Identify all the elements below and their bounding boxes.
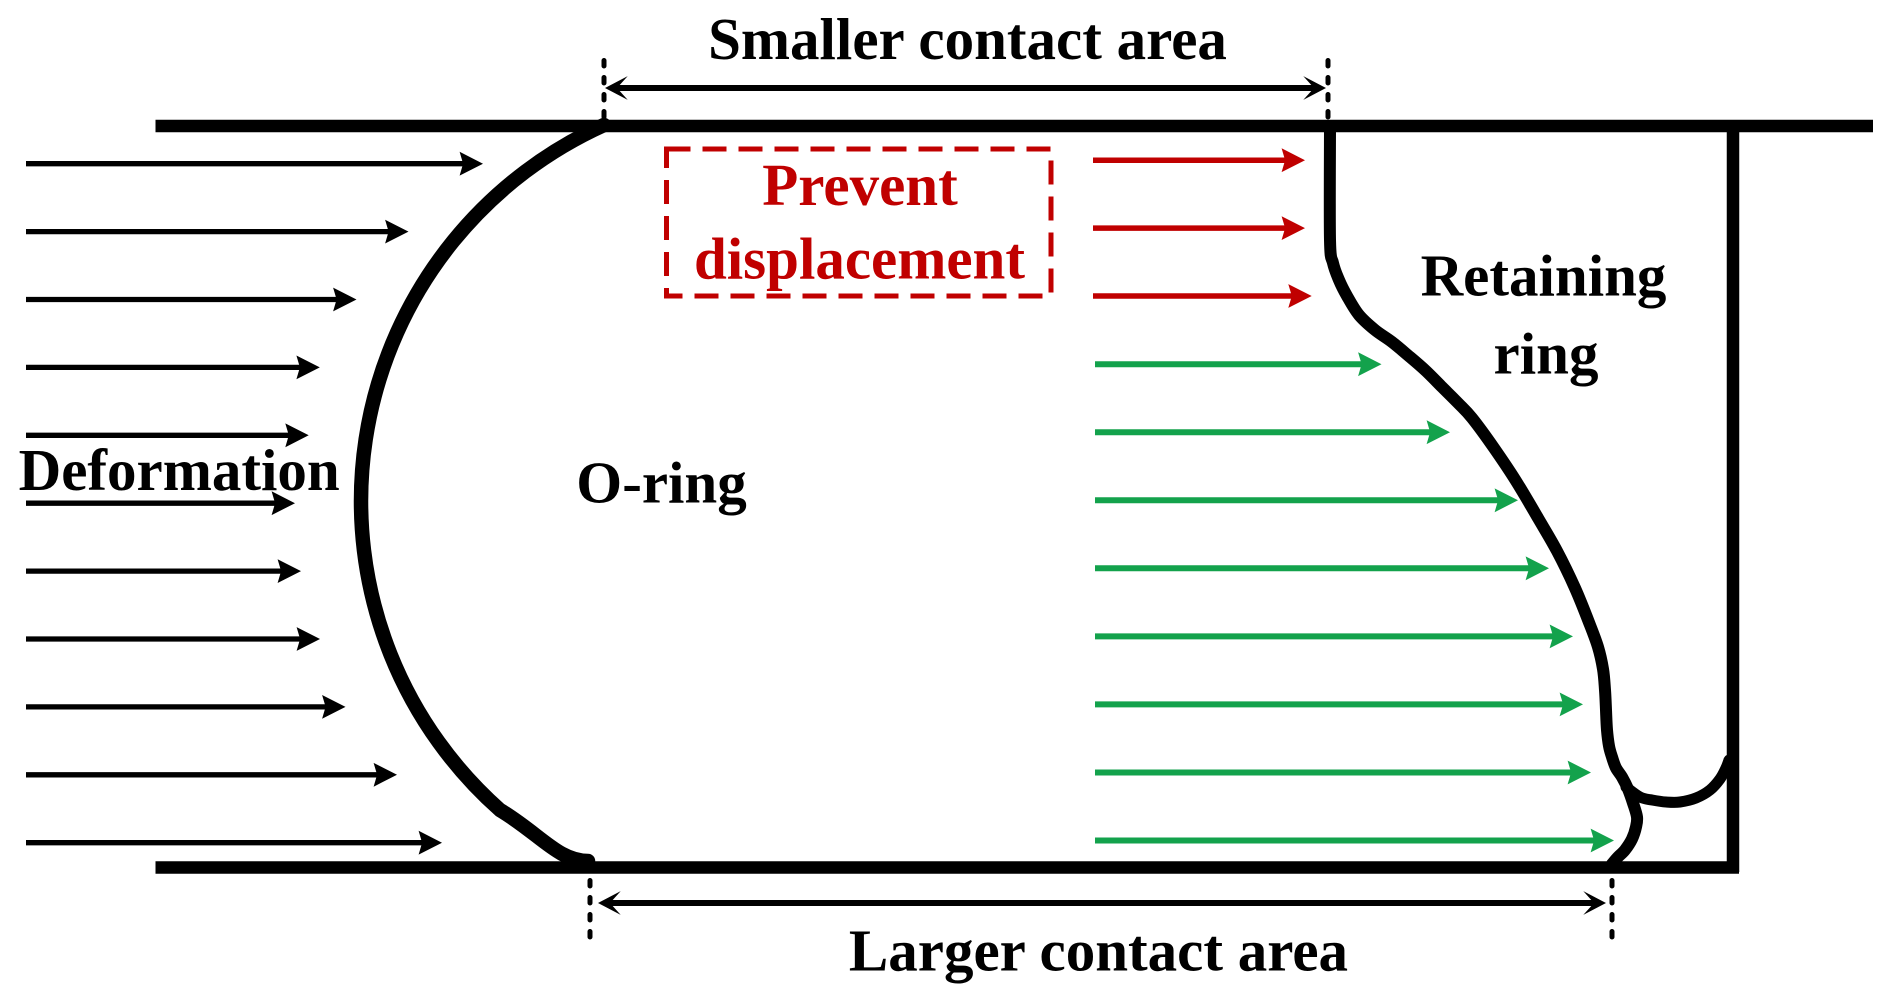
svg-text:Smaller contact area: Smaller contact area xyxy=(708,6,1227,72)
svg-text:Retaining: Retaining xyxy=(1421,242,1667,308)
svg-text:Deformation: Deformation xyxy=(19,437,340,503)
svg-text:Larger contact area: Larger contact area xyxy=(849,918,1348,984)
svg-text:ring: ring xyxy=(1494,320,1599,386)
svg-text:O-ring: O-ring xyxy=(576,450,746,516)
svg-text:displacement: displacement xyxy=(694,225,1025,291)
svg-text:Prevent: Prevent xyxy=(762,152,958,218)
